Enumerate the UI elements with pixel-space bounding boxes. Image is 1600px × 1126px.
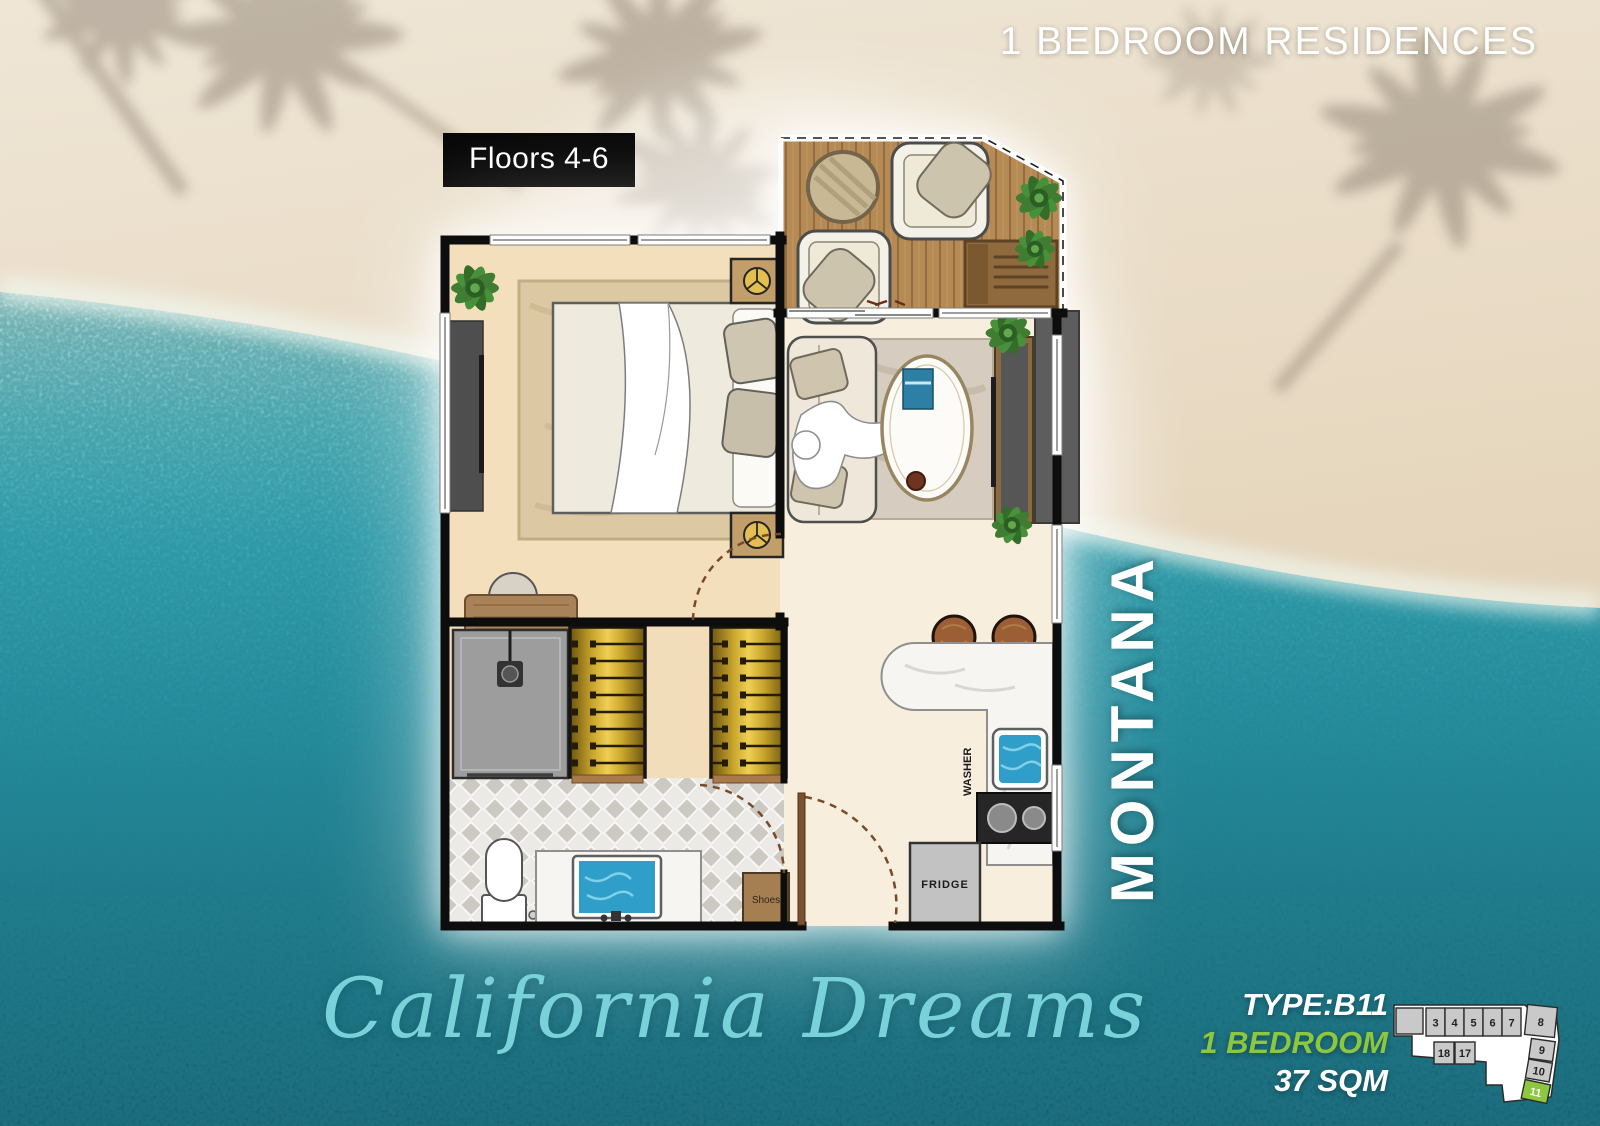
svg-text:6: 6 — [1489, 1018, 1495, 1030]
unit-type: TYPE:B11 — [1200, 986, 1388, 1024]
fridge-label: FRIDGE — [921, 879, 969, 891]
unit-bedrooms: 1 BEDROOM — [1200, 1024, 1388, 1062]
living-tv-console — [991, 337, 1033, 523]
svg-text:8: 8 — [1537, 1017, 1544, 1030]
svg-text:7: 7 — [1508, 1018, 1514, 1030]
kitchen-sink — [993, 729, 1047, 789]
residence-name: MONTANA — [1086, 552, 1179, 903]
svg-text:18: 18 — [1438, 1048, 1450, 1060]
shower — [453, 630, 568, 778]
wardrobe — [711, 627, 786, 777]
balcony-lounge-chair — [892, 136, 997, 239]
fridge: FRIDGE — [910, 843, 980, 923]
brand-script-title: California Dreams — [322, 962, 1149, 1057]
unit-area: 37 SQM — [1200, 1062, 1388, 1100]
svg-text:11: 11 — [1529, 1086, 1543, 1100]
nightstand — [731, 259, 783, 303]
bed — [553, 303, 783, 513]
entry-door-leaf — [798, 793, 805, 925]
shoes-label: Shoes — [752, 895, 780, 906]
threshold — [572, 775, 643, 783]
unit-key-plan: 3 4 5 6 7 8 18 17 9 10 11 — [1388, 998, 1573, 1104]
svg-text:4: 4 — [1451, 1018, 1458, 1030]
svg-text:3: 3 — [1432, 1018, 1438, 1030]
bedroom-tv-panel — [449, 321, 484, 511]
washer-label: WASHER — [962, 748, 974, 796]
vanity-sink — [536, 851, 701, 923]
coffee-table — [882, 356, 972, 500]
balcony-table — [808, 152, 878, 222]
svg-text:17: 17 — [1459, 1048, 1471, 1060]
threshold — [713, 775, 784, 783]
svg-text:5: 5 — [1470, 1018, 1476, 1030]
wardrobe — [570, 627, 645, 777]
stove — [977, 793, 1053, 843]
unit-details: TYPE:B11 1 BEDROOM 37 SQM — [1200, 986, 1388, 1100]
svg-text:10: 10 — [1532, 1065, 1546, 1079]
floor-plan: WASHER FRIDGE — [435, 125, 1080, 945]
brochure-page: 1 BEDROOM RESIDENCES Floors 4-6 — [0, 0, 1600, 1126]
page-title: 1 BEDROOM RESIDENCES — [1000, 20, 1538, 64]
